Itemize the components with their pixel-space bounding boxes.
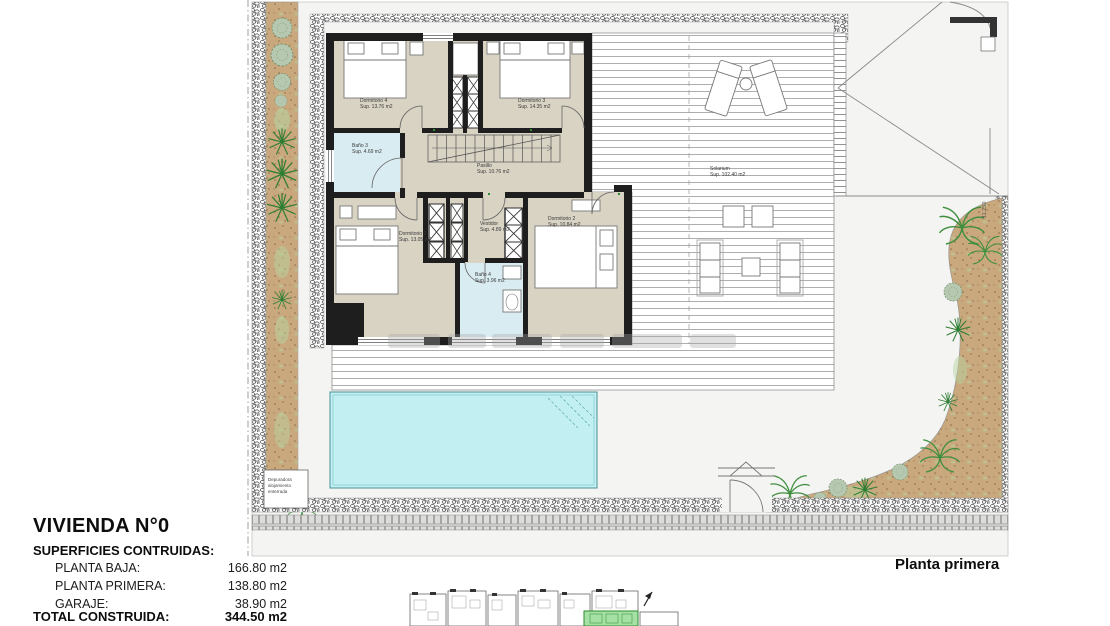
room-label-dormitorio-4: Dormitorio 4 Sup. 13.76 m2 <box>360 98 393 111</box>
room-label-dormitorio-2: Dormitorio 2 Sup. 10.84 m2 <box>548 216 581 229</box>
page-title: VIVIENDA N°0 <box>33 515 169 538</box>
row-value: 166.80 m2 <box>228 561 287 575</box>
total-label: TOTAL CONSTRUIDA: <box>33 609 170 624</box>
room-label-pasillo: Pasillo Sup. 10.76 m2 <box>477 163 510 176</box>
row-value: 138.80 m2 <box>228 579 287 593</box>
total-value: 344.50 m2 <box>225 609 287 624</box>
depuradora-note: Depuradora alojamiento enterrada <box>268 477 304 495</box>
row-label: PLANTA PRIMERA: <box>55 579 166 593</box>
room-label-bano-3: Baño 3 Sup. 4.69 m2 <box>352 143 382 156</box>
room-label-solarium: Solarium Sup. 102.40 m2 <box>710 166 745 179</box>
room-label-dormitorio-1: Dormitorio 1 Sup. 13.05 m2 <box>399 231 432 244</box>
highlighted-unit <box>584 611 638 626</box>
stool <box>723 206 744 227</box>
floorplan-sheet: 11.250 Dormitorio 4 Sup. 13.76 m2 Dormit… <box>0 0 1110 626</box>
areas-heading: SUPERFICIES CONTRUIDAS: <box>33 543 214 558</box>
row-label: PLANTA BAJA: <box>55 561 140 575</box>
room-label-dormitorio-3: Dormitorio 3 Sup. 14.35 m2 <box>518 98 551 111</box>
table-row: PLANTA PRIMERA: 138.80 m2 <box>33 579 287 597</box>
room-label-bano-4: Baño 4 Sup. 3.96 m2 <box>475 272 505 285</box>
north-arrow-icon <box>644 592 652 606</box>
plan-name-label: Planta primera <box>895 556 999 573</box>
pool <box>330 392 597 488</box>
side-table <box>740 78 752 90</box>
boundary-dimension: 11.250 <box>982 202 988 218</box>
areas-table: PLANTA BAJA: 166.80 m2 PLANTA PRIMERA: 1… <box>33 561 287 615</box>
room-label-vestidor: Vestidor Sup. 4.89 m2 <box>480 221 510 234</box>
stool <box>752 206 773 227</box>
table-row: PLANTA BAJA: 166.80 m2 <box>33 561 287 579</box>
table-total-row: TOTAL CONSTRUIDA: 344.50 m2 <box>33 609 287 624</box>
mini-site-plan <box>410 589 678 626</box>
